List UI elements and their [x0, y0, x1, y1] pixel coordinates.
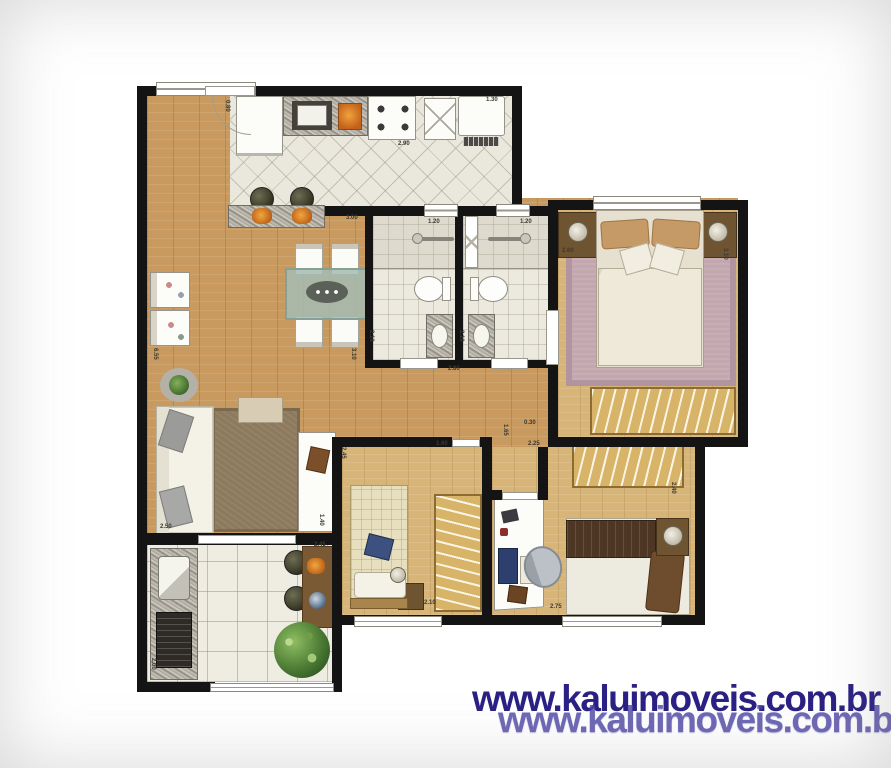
bedroom3-door	[502, 492, 538, 500]
wall-segment	[695, 437, 705, 625]
wall-segment	[455, 206, 463, 368]
lamp	[568, 222, 588, 242]
dimension-label: 2.50	[160, 524, 172, 530]
wall-segment	[492, 490, 502, 500]
sideboard	[150, 310, 190, 346]
sideboard	[150, 272, 190, 308]
table-centerpiece	[306, 281, 348, 303]
lamp	[708, 222, 728, 242]
dimension-label: 2.45	[340, 447, 346, 459]
wall-segment	[548, 437, 748, 447]
bedroom2-wardrobe	[434, 494, 482, 612]
wall-segment	[512, 86, 522, 216]
dimension-label: 6.55	[152, 348, 158, 360]
bedroom2-door	[452, 439, 480, 447]
dimension-label: 1.60	[436, 441, 448, 447]
bedroom2-window	[354, 616, 442, 627]
laundry-cabinet	[424, 98, 456, 140]
plate	[292, 208, 312, 224]
wall-segment	[332, 437, 452, 447]
desk-box	[507, 585, 528, 604]
balcony-sink	[158, 556, 190, 600]
bar-item-blue	[309, 592, 326, 609]
watermark-reflection: www.kaluimoveis.com.br	[498, 699, 891, 741]
kitchen-sink-basin	[297, 105, 327, 126]
tv-stand	[238, 397, 283, 423]
entry-door	[205, 86, 255, 96]
vanity-sink	[473, 324, 490, 348]
cutting-board	[338, 103, 362, 130]
dimension-label: 2.60	[562, 248, 574, 254]
bathroom2-door	[491, 358, 528, 369]
wall-segment	[482, 447, 492, 625]
wall-segment	[332, 437, 342, 692]
dimension-label: 2.10	[424, 600, 436, 606]
wall-segment	[137, 682, 215, 692]
wall-segment	[480, 437, 492, 447]
balcony-railing	[210, 683, 334, 692]
master-window	[593, 196, 701, 210]
lamp	[663, 526, 683, 546]
plate	[252, 208, 272, 224]
dimension-label: 2.10	[368, 330, 374, 342]
living-rug	[212, 408, 300, 532]
bed3-throw	[645, 550, 685, 613]
exterior-top-right	[522, 70, 762, 198]
dining-chair	[295, 316, 323, 348]
balcony-plant	[274, 622, 330, 678]
wall-segment	[137, 545, 147, 692]
dimension-label: 1.40	[318, 514, 324, 526]
dimension-label: 2.10	[458, 330, 464, 342]
dimension-label: 3.10	[350, 348, 356, 360]
bed3-dark-blanket	[566, 520, 656, 558]
dimension-label: 2.75	[550, 604, 562, 610]
dining-chair	[331, 316, 359, 348]
vanity-sink	[431, 324, 448, 348]
wall-segment	[548, 365, 558, 447]
bedroom3-window	[562, 616, 662, 627]
bathroom-window	[496, 204, 530, 217]
stove	[368, 96, 416, 140]
dimension-label: 2.00	[150, 658, 156, 670]
master-wardrobe	[590, 387, 736, 435]
balcony-sliding-door	[198, 535, 296, 544]
dimension-label: 3.00	[346, 215, 358, 221]
bed-duvet	[598, 268, 702, 366]
shower-screen	[465, 216, 478, 268]
shower-head	[412, 233, 423, 244]
dimension-label: 1.65	[502, 424, 508, 436]
balcony-grill	[156, 612, 192, 668]
toilet-tank	[470, 277, 479, 301]
wall-segment	[137, 86, 147, 545]
bed-headboard	[350, 598, 408, 609]
wall-segment	[738, 200, 748, 447]
potted-plant	[169, 375, 189, 395]
dimension-label: 3.10	[722, 248, 728, 260]
dimension-label: 0.80	[224, 100, 230, 112]
bedroom3-wardrobe	[572, 443, 684, 488]
bathroom1-door	[400, 358, 438, 369]
master-door	[546, 310, 559, 365]
bar-item-orange	[307, 558, 325, 574]
wall-segment	[365, 206, 373, 368]
dimension-label: 2.25	[528, 441, 540, 447]
dimension-label: 0.30	[524, 420, 536, 426]
dimension-label: 2.90	[398, 141, 410, 147]
wall-segment	[438, 360, 493, 368]
computer-monitor	[498, 548, 518, 584]
desk-item-red	[500, 528, 508, 536]
toilet	[414, 276, 444, 302]
dimension-label: 1.30	[486, 97, 498, 103]
dimension-label: 2.45	[314, 542, 326, 548]
toilet	[478, 276, 508, 302]
dimension-label: 1.20	[428, 219, 440, 225]
drying-rack	[463, 137, 499, 146]
shower-head	[520, 233, 531, 244]
floor-plan-image: 0.801.302.903.001.201.202.102.102.603.10…	[0, 0, 891, 768]
dimension-label: 2.80	[448, 366, 460, 372]
lamp	[390, 567, 406, 583]
bathroom-window	[424, 204, 458, 217]
dimension-label: 1.20	[520, 219, 532, 225]
shower-grab-bar	[418, 237, 454, 241]
dimension-label: 2.40	[670, 482, 676, 494]
wall-segment	[538, 447, 548, 500]
wall-segment	[548, 206, 558, 310]
exterior-right	[705, 447, 765, 627]
toilet-tank	[442, 277, 451, 301]
wall-segment	[365, 360, 400, 368]
shower-grab-bar	[488, 237, 524, 241]
